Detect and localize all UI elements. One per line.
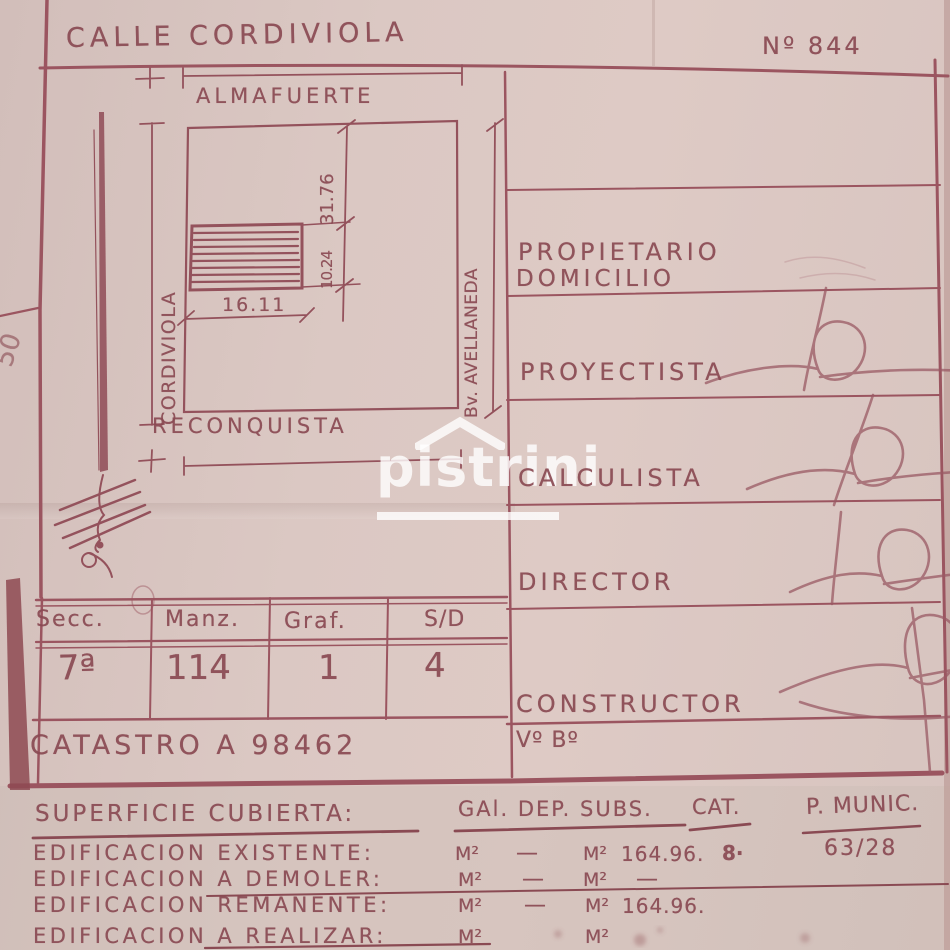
plan-number: Nº 844 xyxy=(762,32,863,60)
dimension-lot-depth: 31.76 xyxy=(317,133,338,225)
label-proyectista: PROYECTISTA xyxy=(520,358,726,386)
surface-row-v1: — xyxy=(524,893,546,918)
surface-row-label: EDIFICACION EXISTENTE: xyxy=(33,841,375,865)
watermark-underline xyxy=(377,512,559,520)
surface-row-label: EDIFICACION A REALIZAR: xyxy=(33,924,387,948)
surface-row-m2a: M² xyxy=(458,869,482,891)
table-header-sd: S/D xyxy=(424,607,465,632)
surface-row-v2: 164.96. xyxy=(621,842,704,866)
label-propietario: PROPIETARIO xyxy=(518,238,721,266)
label-director: DIRECTOR xyxy=(518,568,674,596)
table-value-sd: 4 xyxy=(424,646,446,686)
catastro-number: CATASTRO A 98462 xyxy=(30,730,357,761)
permit-label: P. MUNIC. xyxy=(806,791,920,820)
label-constructor: CONSTRUCTOR xyxy=(516,690,745,718)
signature-proyectista xyxy=(706,288,950,390)
left-fold-doodle xyxy=(55,112,150,577)
surface-col-group: GAl. DEP. SUBS. xyxy=(458,797,653,821)
street-label-avellaneda: Bv. AVELLANEDA xyxy=(462,188,482,418)
surface-row-cat: 8· xyxy=(722,841,744,865)
label-visto-bueno: Vº Bº xyxy=(516,728,579,753)
surface-row-v2: 164.96. xyxy=(622,894,705,918)
table-header-manz: Manz. xyxy=(165,607,240,632)
street-label-reconquista: RECONQUISTA xyxy=(152,414,348,438)
label-domicilio: DOMICILIO xyxy=(516,266,675,292)
label-calculista: CALCULISTA xyxy=(518,464,704,492)
street-label-almafuerte: ALMAFUERTE xyxy=(196,84,374,108)
surface-row-m2b: M² xyxy=(583,869,607,891)
street-label-cordiviola: CORDIVIOLA xyxy=(158,235,180,425)
table-header-secc: Secc. xyxy=(36,607,105,632)
surface-col-cat: CAT. xyxy=(692,795,740,819)
surface-title: SUPERFICIE CUBIERTA: xyxy=(35,801,355,827)
signature-calculista xyxy=(747,395,950,505)
scanned-municipal-plan-sheet: CALLE CORDIVIOLA Nº 844 ALMAFUERTE CORDI… xyxy=(0,0,950,950)
surface-row-m2a: M² xyxy=(458,895,482,917)
surface-row-v1: — xyxy=(516,841,538,866)
street-name-top: CALLE CORDIVIOLA xyxy=(66,17,409,54)
surface-row-label: EDIFICACION A DEMOLER: xyxy=(33,867,383,891)
surface-row-m2b: M² xyxy=(585,895,609,917)
table-value-secc: 7ª xyxy=(57,647,96,688)
surface-row-v1: — xyxy=(522,867,544,892)
surface-row-m2b: M² xyxy=(583,843,607,865)
surface-row-v2: — xyxy=(636,867,658,892)
surface-row-m2a: M² xyxy=(458,926,482,948)
table-value-graf: 1 xyxy=(318,648,340,688)
table-header-graf: Graf. xyxy=(284,609,347,634)
surface-row-label: EDIFICACION REMANENTE: xyxy=(33,893,391,917)
signature-director xyxy=(790,512,950,604)
building-hatch xyxy=(192,232,299,282)
surface-row-m2b: M² xyxy=(585,926,609,948)
surface-row-m2a: M² xyxy=(455,843,479,865)
dimension-building-width: 16.11 xyxy=(222,294,286,316)
pencil-marks xyxy=(785,257,875,280)
signature-constructor xyxy=(780,608,950,772)
table-value-manz: 114 xyxy=(166,648,231,688)
permit-number: 63/28 xyxy=(824,836,897,861)
dimension-building-depth: 10.24 xyxy=(318,227,336,289)
